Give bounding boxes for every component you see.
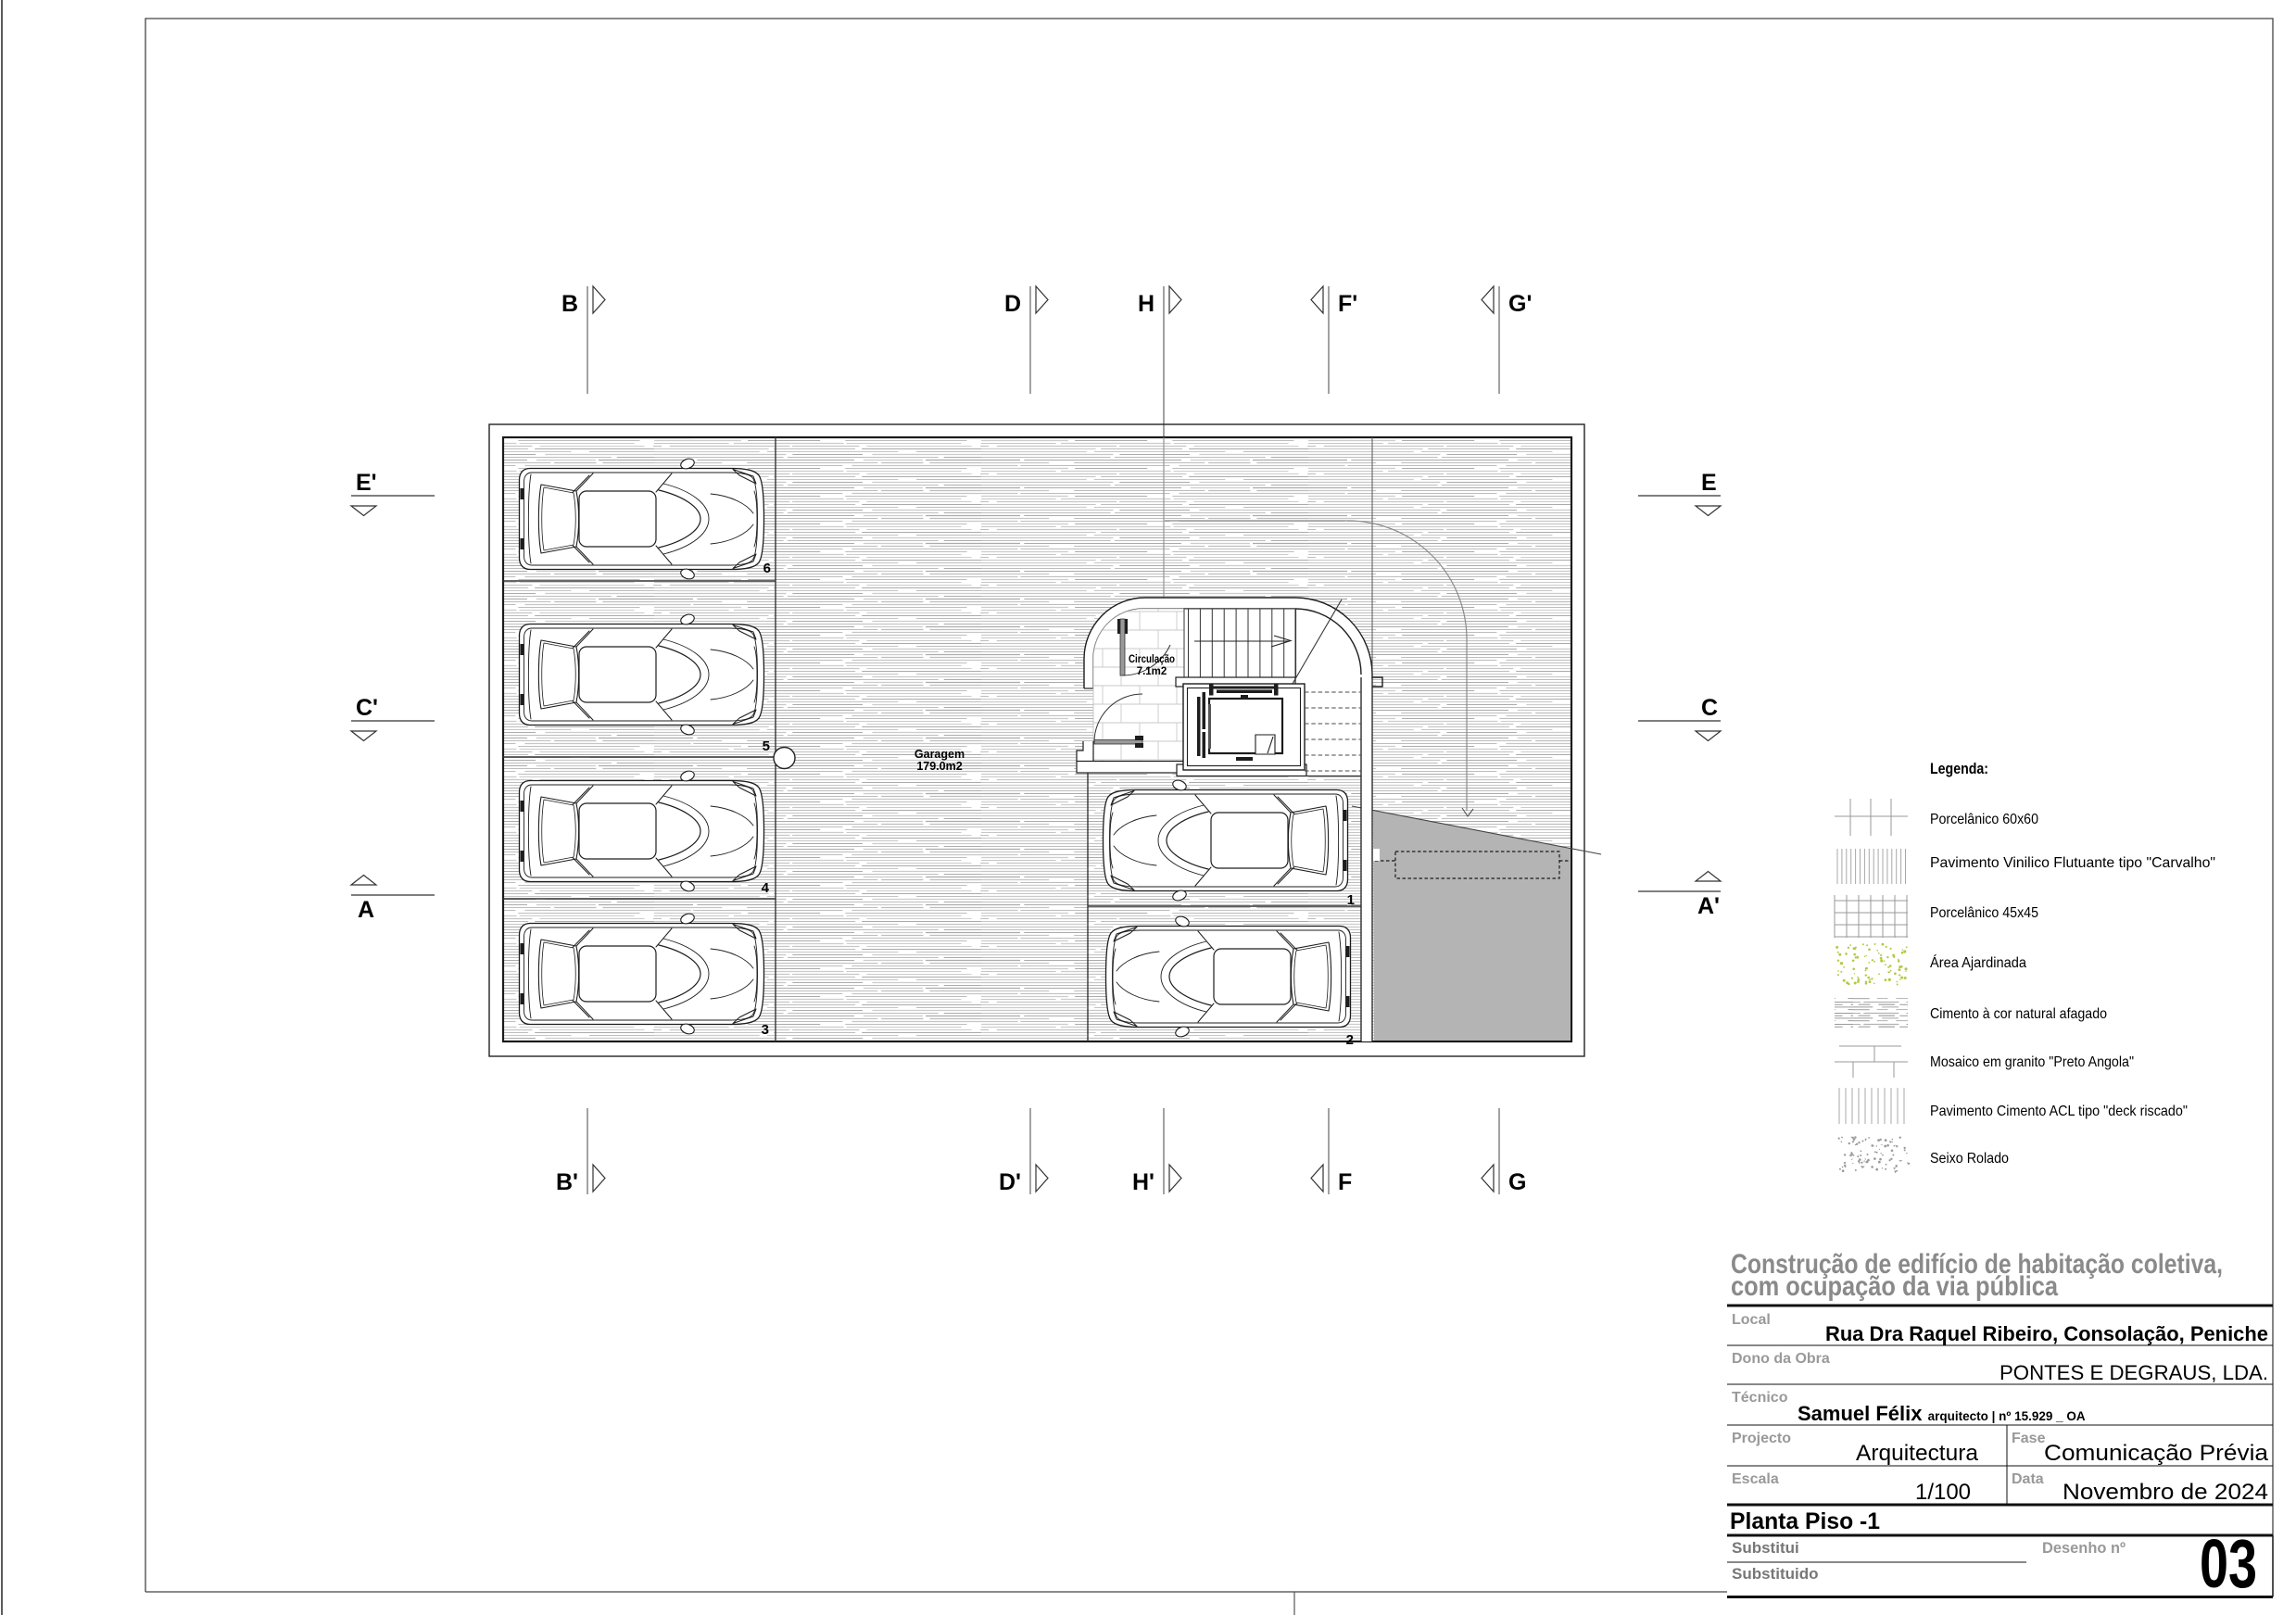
svg-text:Porcelânico 45x45: Porcelânico 45x45 — [1930, 905, 2038, 921]
svg-text:7.1m2: 7.1m2 — [1137, 666, 1167, 677]
svg-text:A': A' — [1697, 893, 1720, 919]
svg-text:Fase: Fase — [2012, 1431, 2046, 1446]
svg-text:Substituido: Substituido — [1732, 1565, 1818, 1583]
svg-text:com ocupação da via pública: com ocupação da via pública — [1731, 1271, 2058, 1302]
svg-text:Novembro de 2024: Novembro de 2024 — [2063, 1480, 2268, 1505]
svg-text:Pavimento Cimento ACL tipo "de: Pavimento Cimento ACL tipo "deck riscado… — [1930, 1104, 2188, 1119]
svg-text:Técnico: Técnico — [1732, 1390, 1788, 1406]
svg-text:4: 4 — [762, 880, 770, 896]
svg-text:Substitui: Substitui — [1732, 1539, 1799, 1557]
svg-text:Escala: Escala — [1732, 1471, 1779, 1487]
svg-text:B: B — [561, 291, 578, 317]
svg-text:179.0m2: 179.0m2 — [916, 760, 962, 773]
svg-text:1/100: 1/100 — [1915, 1480, 1971, 1505]
svg-text:Rua Dra Raquel Ribeiro, Consol: Rua Dra Raquel Ribeiro, Consolação, Peni… — [1825, 1322, 2268, 1345]
svg-text:PONTES E DEGRAUS, LDA.: PONTES E DEGRAUS, LDA. — [2000, 1361, 2268, 1384]
svg-text:E': E' — [356, 470, 377, 496]
svg-text:3: 3 — [762, 1022, 769, 1038]
svg-text:03: 03 — [2200, 1525, 2257, 1602]
svg-text:A: A — [358, 897, 374, 923]
svg-text:C: C — [1701, 695, 1718, 721]
svg-text:Cimento à cor natural afagado: Cimento à cor natural afagado — [1930, 1006, 2107, 1022]
svg-text:Arquitectura: Arquitectura — [1856, 1441, 1979, 1466]
svg-text:Planta Piso -1: Planta Piso -1 — [1730, 1508, 1880, 1534]
svg-text:5: 5 — [763, 738, 770, 754]
svg-text:Seixo Rolado: Seixo Rolado — [1930, 1151, 2009, 1167]
svg-text:D': D' — [999, 1169, 1021, 1195]
svg-text:E: E — [1701, 470, 1717, 496]
svg-text:1: 1 — [1347, 892, 1355, 908]
svg-text:G: G — [1508, 1169, 1526, 1195]
svg-text:6: 6 — [763, 561, 771, 576]
svg-text:H': H' — [1132, 1169, 1154, 1195]
svg-text:Legenda:: Legenda: — [1930, 760, 1988, 777]
svg-text:H: H — [1138, 291, 1154, 317]
svg-text:Pavimento Vinilico Flutuante t: Pavimento Vinilico Flutuante tipo "Carva… — [1930, 855, 2215, 871]
svg-text:Dono da Obra: Dono da Obra — [1732, 1351, 1830, 1367]
svg-text:Comunicação Prévia: Comunicação Prévia — [2044, 1441, 2269, 1466]
svg-text:Data: Data — [2012, 1471, 2044, 1487]
svg-text:Garagem: Garagem — [915, 748, 965, 761]
svg-text:G': G' — [1508, 291, 1532, 317]
svg-text:C': C' — [356, 695, 378, 721]
svg-text:Mosaico em granito "Preto Ango: Mosaico em granito "Preto Angola" — [1930, 1054, 2134, 1070]
svg-text:F: F — [1338, 1169, 1352, 1195]
svg-text:Área Ajardinada: Área Ajardinada — [1930, 953, 2026, 971]
svg-text:Local: Local — [1732, 1312, 1771, 1328]
svg-text:Porcelânico 60x60: Porcelânico 60x60 — [1930, 812, 2038, 827]
svg-text:B': B' — [556, 1169, 578, 1195]
svg-text:F': F' — [1338, 291, 1357, 317]
svg-text:D: D — [1004, 291, 1021, 317]
svg-text:Projecto: Projecto — [1732, 1431, 1791, 1446]
svg-text:2: 2 — [1346, 1032, 1354, 1048]
svg-text:Circulação: Circulação — [1129, 654, 1175, 665]
svg-text:Desenho nº: Desenho nº — [2042, 1539, 2126, 1557]
